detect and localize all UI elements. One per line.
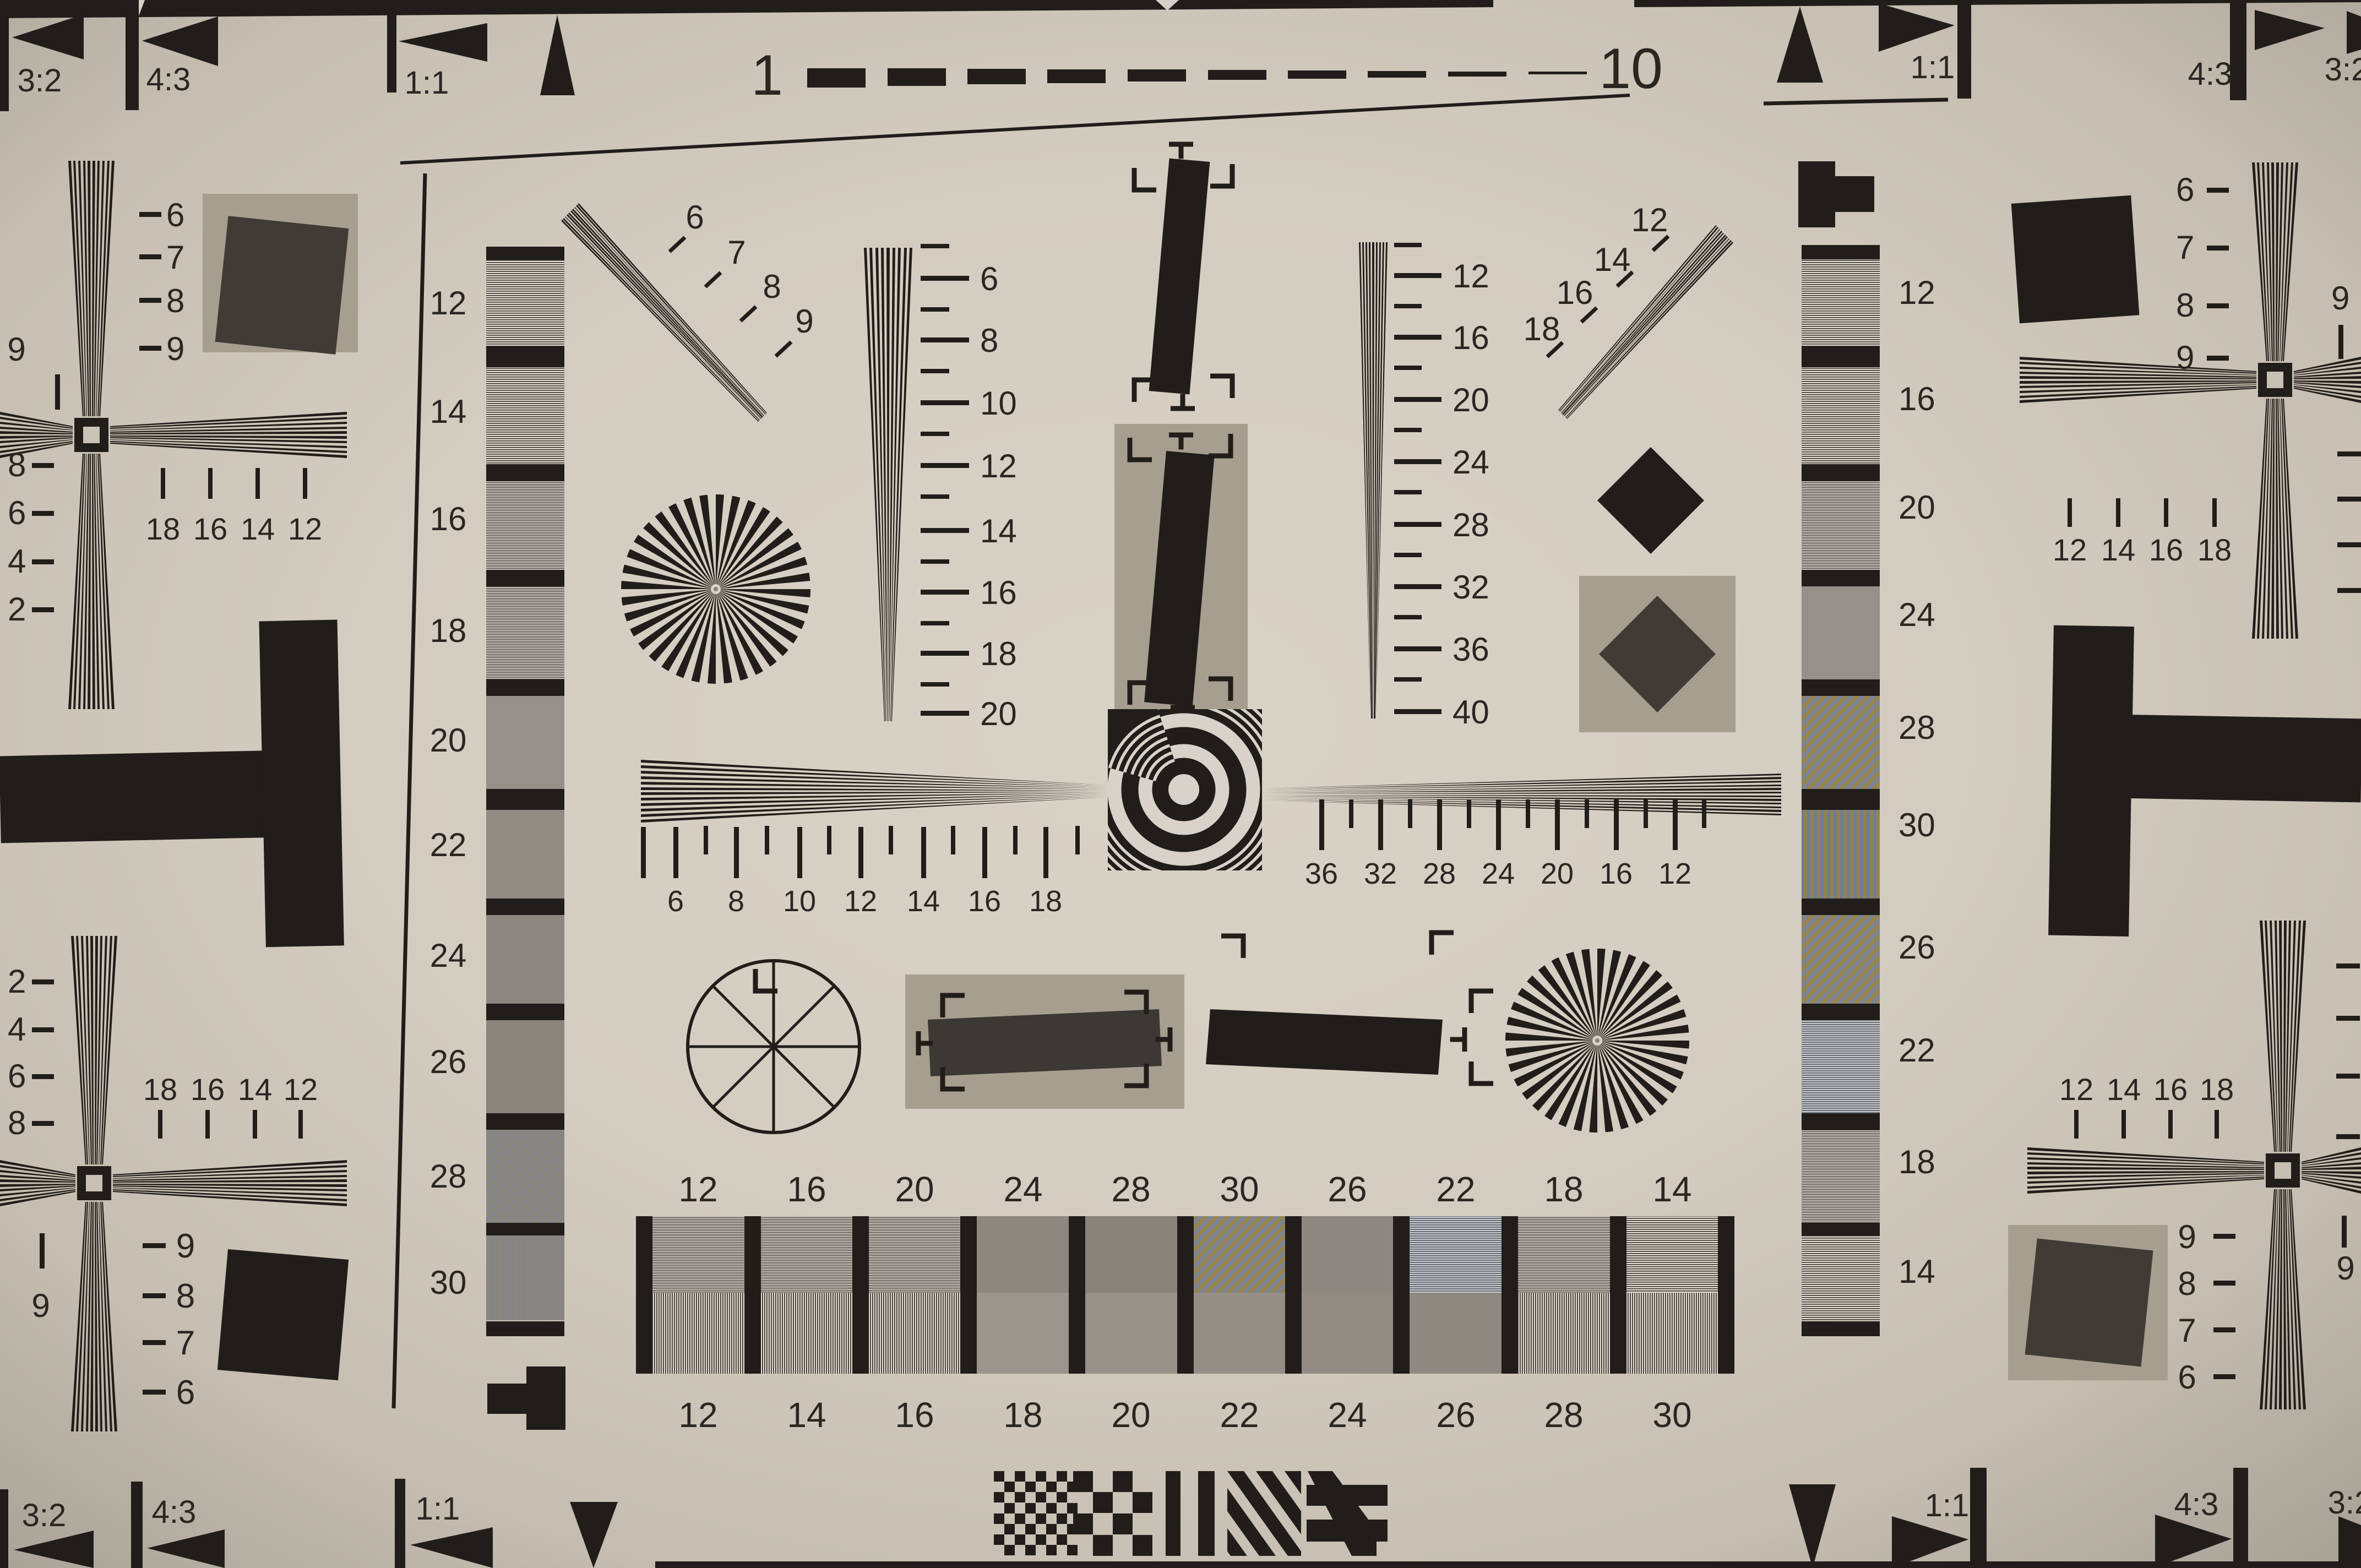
svg-text:4:3: 4:3 <box>146 62 191 97</box>
svg-text:16: 16 <box>191 1072 225 1107</box>
svg-text:14: 14 <box>1652 1169 1691 1209</box>
svg-text:9: 9 <box>2331 280 2349 317</box>
svg-text:20: 20 <box>430 722 467 759</box>
svg-text:16: 16 <box>2149 532 2183 567</box>
svg-text:30: 30 <box>1898 807 1935 843</box>
svg-text:9: 9 <box>31 1287 50 1324</box>
svg-text:30: 30 <box>1652 1395 1691 1435</box>
svg-text:8: 8 <box>2178 1265 2196 1302</box>
svg-text:24: 24 <box>1898 596 1935 633</box>
svg-text:8: 8 <box>2176 287 2194 324</box>
svg-text:20: 20 <box>980 695 1017 732</box>
svg-text:18: 18 <box>1544 1169 1583 1209</box>
svg-text:6: 6 <box>2178 1359 2196 1396</box>
svg-text:30: 30 <box>430 1264 467 1301</box>
svg-text:1:1: 1:1 <box>1911 50 1955 85</box>
svg-text:18: 18 <box>1003 1395 1042 1435</box>
svg-text:3:2: 3:2 <box>22 1498 67 1533</box>
svg-text:12: 12 <box>980 448 1017 484</box>
svg-text:14: 14 <box>2101 532 2135 567</box>
svg-text:24: 24 <box>1482 857 1515 890</box>
svg-text:12: 12 <box>678 1395 717 1435</box>
svg-text:2: 2 <box>8 591 26 628</box>
svg-text:40: 40 <box>1452 694 1489 731</box>
svg-text:20: 20 <box>1541 857 1574 890</box>
svg-text:20: 20 <box>1898 489 1935 526</box>
svg-text:24: 24 <box>1452 444 1489 481</box>
svg-text:8: 8 <box>728 885 744 918</box>
svg-text:28: 28 <box>430 1158 467 1195</box>
svg-text:14: 14 <box>241 511 275 546</box>
svg-text:28: 28 <box>1423 857 1456 890</box>
svg-text:18: 18 <box>143 1072 177 1107</box>
svg-text:12: 12 <box>678 1169 717 1209</box>
svg-text:1:1: 1:1 <box>405 65 449 101</box>
svg-text:12: 12 <box>1452 258 1489 295</box>
svg-text:9: 9 <box>166 330 184 367</box>
svg-text:26: 26 <box>1898 929 1935 966</box>
svg-text:3:2: 3:2 <box>18 63 62 99</box>
svg-text:20: 20 <box>895 1169 934 1209</box>
svg-text:26: 26 <box>1436 1395 1475 1435</box>
svg-text:10: 10 <box>980 385 1017 422</box>
svg-text:18: 18 <box>1524 311 1560 347</box>
svg-text:4:3: 4:3 <box>2174 1487 2219 1522</box>
svg-text:8: 8 <box>176 1277 195 1315</box>
svg-text:12: 12 <box>288 511 322 546</box>
svg-text:20: 20 <box>1452 382 1489 418</box>
svg-text:28: 28 <box>1452 507 1489 543</box>
svg-text:10: 10 <box>783 885 816 918</box>
svg-text:6: 6 <box>166 197 184 233</box>
svg-text:4: 4 <box>8 1011 26 1048</box>
svg-text:36: 36 <box>1305 857 1338 890</box>
svg-text:7: 7 <box>176 1324 195 1362</box>
svg-text:16: 16 <box>430 500 467 537</box>
svg-text:12: 12 <box>2059 1072 2093 1107</box>
svg-text:1:1: 1:1 <box>416 1491 460 1527</box>
svg-text:8: 8 <box>980 322 998 359</box>
svg-text:16: 16 <box>895 1395 934 1435</box>
svg-text:18: 18 <box>1029 885 1062 918</box>
svg-text:10: 10 <box>1599 37 1663 101</box>
svg-text:18: 18 <box>980 635 1017 672</box>
svg-text:4: 4 <box>8 543 26 580</box>
svg-text:18: 18 <box>146 511 180 546</box>
svg-text:6: 6 <box>176 1374 195 1412</box>
svg-text:8: 8 <box>8 447 26 483</box>
svg-text:16: 16 <box>1557 274 1593 311</box>
svg-text:14: 14 <box>907 885 940 918</box>
svg-text:12: 12 <box>1658 857 1691 890</box>
svg-text:12: 12 <box>1898 274 1935 311</box>
svg-text:16: 16 <box>193 511 227 546</box>
svg-text:22: 22 <box>1436 1169 1475 1209</box>
svg-text:32: 32 <box>1452 569 1489 606</box>
svg-text:6: 6 <box>8 494 26 531</box>
svg-text:14: 14 <box>2107 1072 2141 1107</box>
svg-text:36: 36 <box>1452 631 1489 668</box>
svg-text:6: 6 <box>8 1058 26 1095</box>
svg-text:18: 18 <box>430 612 467 649</box>
svg-text:24: 24 <box>1003 1169 1042 1209</box>
svg-text:16: 16 <box>787 1169 826 1209</box>
svg-text:3:2: 3:2 <box>2325 52 2361 88</box>
svg-text:4:3: 4:3 <box>152 1494 197 1530</box>
svg-text:12: 12 <box>430 285 467 322</box>
svg-text:7: 7 <box>2176 229 2194 266</box>
svg-text:8: 8 <box>166 282 184 319</box>
svg-text:18: 18 <box>2197 532 2232 567</box>
svg-text:9: 9 <box>2178 1218 2196 1255</box>
svg-text:14: 14 <box>238 1072 272 1107</box>
svg-text:28: 28 <box>1111 1169 1150 1209</box>
svg-text:18: 18 <box>1898 1144 1935 1180</box>
svg-text:30: 30 <box>1220 1169 1259 1209</box>
svg-text:8: 8 <box>763 268 781 305</box>
svg-text:22: 22 <box>430 826 467 863</box>
svg-text:12: 12 <box>284 1072 318 1107</box>
svg-text:14: 14 <box>1898 1253 1935 1290</box>
svg-text:16: 16 <box>1898 380 1935 417</box>
svg-text:1:1: 1:1 <box>1925 1488 1970 1523</box>
svg-text:1: 1 <box>751 43 783 107</box>
svg-text:12: 12 <box>2053 532 2087 567</box>
svg-text:24: 24 <box>430 937 467 974</box>
svg-text:22: 22 <box>1220 1395 1259 1435</box>
svg-text:6: 6 <box>2176 171 2194 208</box>
svg-text:3:2: 3:2 <box>2328 1485 2361 1521</box>
svg-text:8: 8 <box>8 1104 26 1141</box>
svg-text:6: 6 <box>980 260 998 297</box>
svg-text:32: 32 <box>1364 857 1397 890</box>
svg-text:26: 26 <box>1328 1169 1367 1209</box>
svg-text:12: 12 <box>1631 202 1668 238</box>
svg-text:9: 9 <box>2336 1250 2354 1287</box>
svg-text:2: 2 <box>8 963 26 1000</box>
svg-text:6: 6 <box>686 199 704 236</box>
svg-text:9: 9 <box>7 331 25 368</box>
svg-text:6: 6 <box>667 885 684 918</box>
svg-text:7: 7 <box>166 239 184 276</box>
svg-text:28: 28 <box>1898 709 1935 746</box>
svg-text:14: 14 <box>787 1395 826 1435</box>
svg-text:16: 16 <box>968 885 1001 918</box>
svg-text:16: 16 <box>2153 1072 2188 1107</box>
svg-text:14: 14 <box>980 513 1017 549</box>
svg-text:16: 16 <box>980 574 1017 611</box>
svg-text:26: 26 <box>430 1043 467 1080</box>
svg-text:4:3: 4:3 <box>2188 56 2233 92</box>
svg-text:22: 22 <box>1898 1032 1935 1069</box>
svg-text:14: 14 <box>1594 241 1631 278</box>
svg-text:18: 18 <box>2200 1072 2234 1107</box>
svg-text:16: 16 <box>1452 319 1489 356</box>
svg-text:28: 28 <box>1544 1395 1583 1435</box>
svg-text:20: 20 <box>1111 1395 1150 1435</box>
svg-text:24: 24 <box>1328 1395 1367 1435</box>
svg-text:7: 7 <box>727 234 746 271</box>
svg-text:9: 9 <box>176 1227 195 1265</box>
svg-text:12: 12 <box>844 885 877 918</box>
svg-text:9: 9 <box>795 303 813 340</box>
svg-text:7: 7 <box>2178 1312 2196 1349</box>
svg-text:16: 16 <box>1600 857 1633 890</box>
svg-text:14: 14 <box>430 393 467 430</box>
